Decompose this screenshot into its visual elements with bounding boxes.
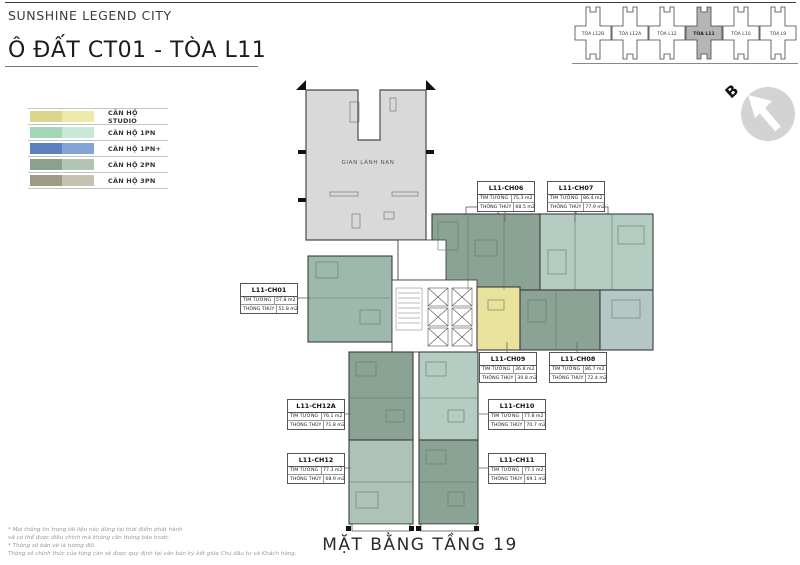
- unit-shape-ch08[interactable]: [520, 290, 600, 350]
- disclaimer: * Mọi thông tin trong tài liệu này đúng …: [8, 526, 308, 558]
- dim-thong-thuy-value: 77.9 m2: [584, 203, 606, 211]
- dim-tim-tuong-value: 77.8 m2: [523, 413, 545, 421]
- dim-tim-tuong-label: TIM TƯỜNG: [480, 366, 514, 374]
- unit-label-l11-ch12a[interactable]: L11-CH12A TIM TƯỜNG76.1 m2 THÔNG THỦY71.…: [287, 399, 345, 430]
- legend-label: CĂN HỘ 2PN: [108, 161, 155, 169]
- legend-label: CĂN HỘ 1PN+: [108, 145, 161, 153]
- legend-label: CĂN HỘ STUDIO: [108, 109, 168, 125]
- dim-tim-tuong-label: TIM TƯỜNG: [489, 413, 523, 421]
- unit-id: L11-CH12A: [288, 400, 344, 413]
- unit-shape-ch08-annex[interactable]: [600, 290, 653, 350]
- unit-shape-ch10[interactable]: [419, 352, 478, 440]
- dim-thong-thuy-label: THÔNG THỦY: [478, 203, 514, 211]
- dim-thong-thuy-value: 30.8 m2: [516, 374, 538, 382]
- legend-item-3pn: CĂN HỘ 3PN: [28, 173, 168, 189]
- legend-item-studio: CĂN HỘ STUDIO: [28, 109, 168, 125]
- unit-shape-ch06[interactable]: [432, 214, 540, 290]
- dim-thong-thuy-value: 69.1 m2: [525, 475, 547, 483]
- unit-id: L11-CH06: [478, 182, 534, 195]
- disclaimer-line: * Thông số bản vẽ là tương đối.: [8, 542, 308, 550]
- disclaimer-line: và có thể được điều chỉnh mà không cần t…: [8, 534, 308, 542]
- floor-plan: GIAN LÁNH NẠN: [296, 80, 653, 531]
- tower-label: TÒA L12B: [581, 30, 605, 37]
- dim-tim-tuong-value: 86.4 m2: [582, 195, 604, 203]
- dim-thong-thuy-label: THÔNG THỦY: [288, 421, 324, 429]
- dim-thong-thuy-value: 72.4 m2: [586, 374, 608, 382]
- dim-tim-tuong-label: TIM TƯỜNG: [548, 195, 582, 203]
- dim-thong-thuy-label: THÔNG THỦY: [550, 374, 586, 382]
- dim-thong-thuy-label: THÔNG THỦY: [480, 374, 516, 382]
- dim-tim-tuong-value: 77.3 m2: [322, 467, 344, 475]
- tower-label: TÒA L9: [769, 30, 787, 37]
- dim-tim-tuong-label: TIM TƯỜNG: [478, 195, 512, 203]
- floorplan-page: SUNSHINE LEGEND CITY Ô ĐẤT CT01 - TÒA L1…: [0, 0, 800, 565]
- tower-label: TÒA L12A: [618, 30, 642, 37]
- legend-swatch-1pn-plus: [30, 143, 94, 154]
- dim-tim-tuong-label: TIM TƯỜNG: [288, 413, 322, 421]
- tower-item-l12b[interactable]: TÒA L12B: [575, 7, 611, 59]
- dim-tim-tuong-value: 75.3 m2: [512, 195, 534, 203]
- legend-swatch-studio: [30, 111, 94, 122]
- unit-label-l11-ch12[interactable]: L11-CH12 TIM TƯỜNG77.3 m2 THÔNG THỦY68.9…: [287, 453, 345, 484]
- legend-item-1pn: CĂN HỘ 1PN: [28, 125, 168, 141]
- legend-item-1pn-plus: CĂN HỘ 1PN+: [28, 141, 168, 157]
- dim-thong-thuy-label: THÔNG THỦY: [548, 203, 584, 211]
- dim-tim-tuong-label: TIM TƯỜNG: [241, 297, 275, 305]
- unit-label-l11-ch08[interactable]: L11-CH08 TIM TƯỜNG86.7 m2 THÔNG THỦY72.4…: [549, 352, 607, 383]
- dim-tim-tuong-label: TIM TƯỜNG: [550, 366, 584, 374]
- unit-id: L11-CH08: [550, 353, 606, 366]
- dim-thong-thuy-value: 51.8 m2: [277, 305, 299, 313]
- dim-tim-tuong-value: 57.8 m2: [275, 297, 297, 305]
- north-label: B: [722, 81, 743, 102]
- staircase: [396, 288, 422, 330]
- core-lobby: [398, 240, 446, 280]
- unit-label-l11-ch09[interactable]: L11-CH09 TIM TƯỜNG36.8 m2 THÔNG THỦY30.8…: [479, 352, 537, 383]
- tower-map: TÒA L12B TÒA L12A TÒA L12 TÒA L11 TÒA L1…: [0, 0, 800, 565]
- legend-swatch-2pn: [30, 159, 94, 170]
- unit-shape-ch07[interactable]: [540, 214, 653, 290]
- dim-tim-tuong-value: 76.1 m2: [322, 413, 344, 421]
- unit-shape-ch09[interactable]: [477, 287, 520, 350]
- dim-thong-thuy-value: 70.7 m2: [525, 421, 547, 429]
- balcony: [352, 524, 410, 531]
- unit-shape-ch01[interactable]: [308, 256, 392, 342]
- dim-thong-thuy-label: THÔNG THỦY: [288, 475, 324, 483]
- unit-id: L11-CH12: [288, 454, 344, 467]
- tower-item-l12[interactable]: TÒA L12: [649, 7, 685, 59]
- unit-label-l11-ch07[interactable]: L11-CH07 TIM TƯỜNG86.4 m2 THÔNG THỦY77.9…: [547, 181, 605, 212]
- floor-title: MẶT BẰNG TẦNG 19: [310, 535, 530, 555]
- disclaimer-line: Thông số chính thức của từng căn sẽ được…: [8, 550, 308, 558]
- dim-thong-thuy-label: THÔNG THỦY: [489, 475, 525, 483]
- legend-item-2pn: CĂN HỘ 2PN: [28, 157, 168, 173]
- unit-label-l11-ch10[interactable]: L11-CH10 TIM TƯỜNG77.8 m2 THÔNG THỦY70.7…: [488, 399, 546, 430]
- legend-label: CĂN HỘ 1PN: [108, 129, 155, 137]
- tower-label: TÒA L11: [693, 30, 714, 37]
- unit-id: L11-CH10: [489, 400, 545, 413]
- legend-label: CĂN HỘ 3PN: [108, 177, 155, 185]
- dim-tim-tuong-value: 36.8 m2: [514, 366, 536, 374]
- dim-thong-thuy-value: 71.8 m2: [324, 421, 346, 429]
- balcony: [421, 524, 476, 531]
- unit-id: L11-CH09: [480, 353, 536, 366]
- tower-item-l9[interactable]: TÒA L9: [760, 7, 796, 59]
- dim-thong-thuy-value: 68.5 m2: [514, 203, 536, 211]
- dim-thong-thuy-label: THÔNG THỦY: [241, 305, 277, 313]
- legend-swatch-1pn: [30, 127, 94, 138]
- tower-label: TÒA L10: [730, 30, 750, 37]
- compass: B: [722, 81, 795, 141]
- unit-label-l11-ch01[interactable]: L11-CH01 TIM TƯỜNG57.8 m2 THÔNG THỦY51.8…: [240, 283, 298, 314]
- unit-id: L11-CH11: [489, 454, 545, 467]
- refuge-area-label: GIAN LÁNH NẠN: [341, 159, 394, 166]
- unit-id: L11-CH01: [241, 284, 297, 297]
- dim-tim-tuong-label: TIM TƯỜNG: [288, 467, 322, 475]
- tower-item-l10[interactable]: TÒA L10: [723, 7, 759, 59]
- unit-id: L11-CH07: [548, 182, 604, 195]
- unit-label-l11-ch06[interactable]: L11-CH06 TIM TƯỜNG75.3 m2 THÔNG THỦY68.5…: [477, 181, 535, 212]
- dim-thong-thuy-label: THÔNG THỦY: [489, 421, 525, 429]
- dim-thong-thuy-value: 68.9 m2: [324, 475, 346, 483]
- legend-swatch-3pn: [30, 175, 94, 186]
- disclaimer-line: * Mọi thông tin trong tài liệu này đúng …: [8, 526, 308, 534]
- tower-label: TÒA L12: [656, 30, 676, 37]
- dim-tim-tuong-label: TIM TƯỜNG: [489, 467, 523, 475]
- unit-label-l11-ch11[interactable]: L11-CH11 TIM TƯỜNG77.1 m2 THÔNG THỦY69.1…: [488, 453, 546, 484]
- dim-tim-tuong-value: 77.1 m2: [523, 467, 545, 475]
- tower-item-l11-selected[interactable]: TÒA L11: [686, 7, 722, 59]
- unit-shape-ch12a[interactable]: [349, 352, 413, 440]
- tower-item-l12a[interactable]: TÒA L12A: [612, 7, 648, 59]
- legend: CĂN HỘ STUDIO CĂN HỘ 1PN CĂN HỘ 1PN+ CĂN…: [28, 108, 168, 189]
- dim-tim-tuong-value: 86.7 m2: [584, 366, 606, 374]
